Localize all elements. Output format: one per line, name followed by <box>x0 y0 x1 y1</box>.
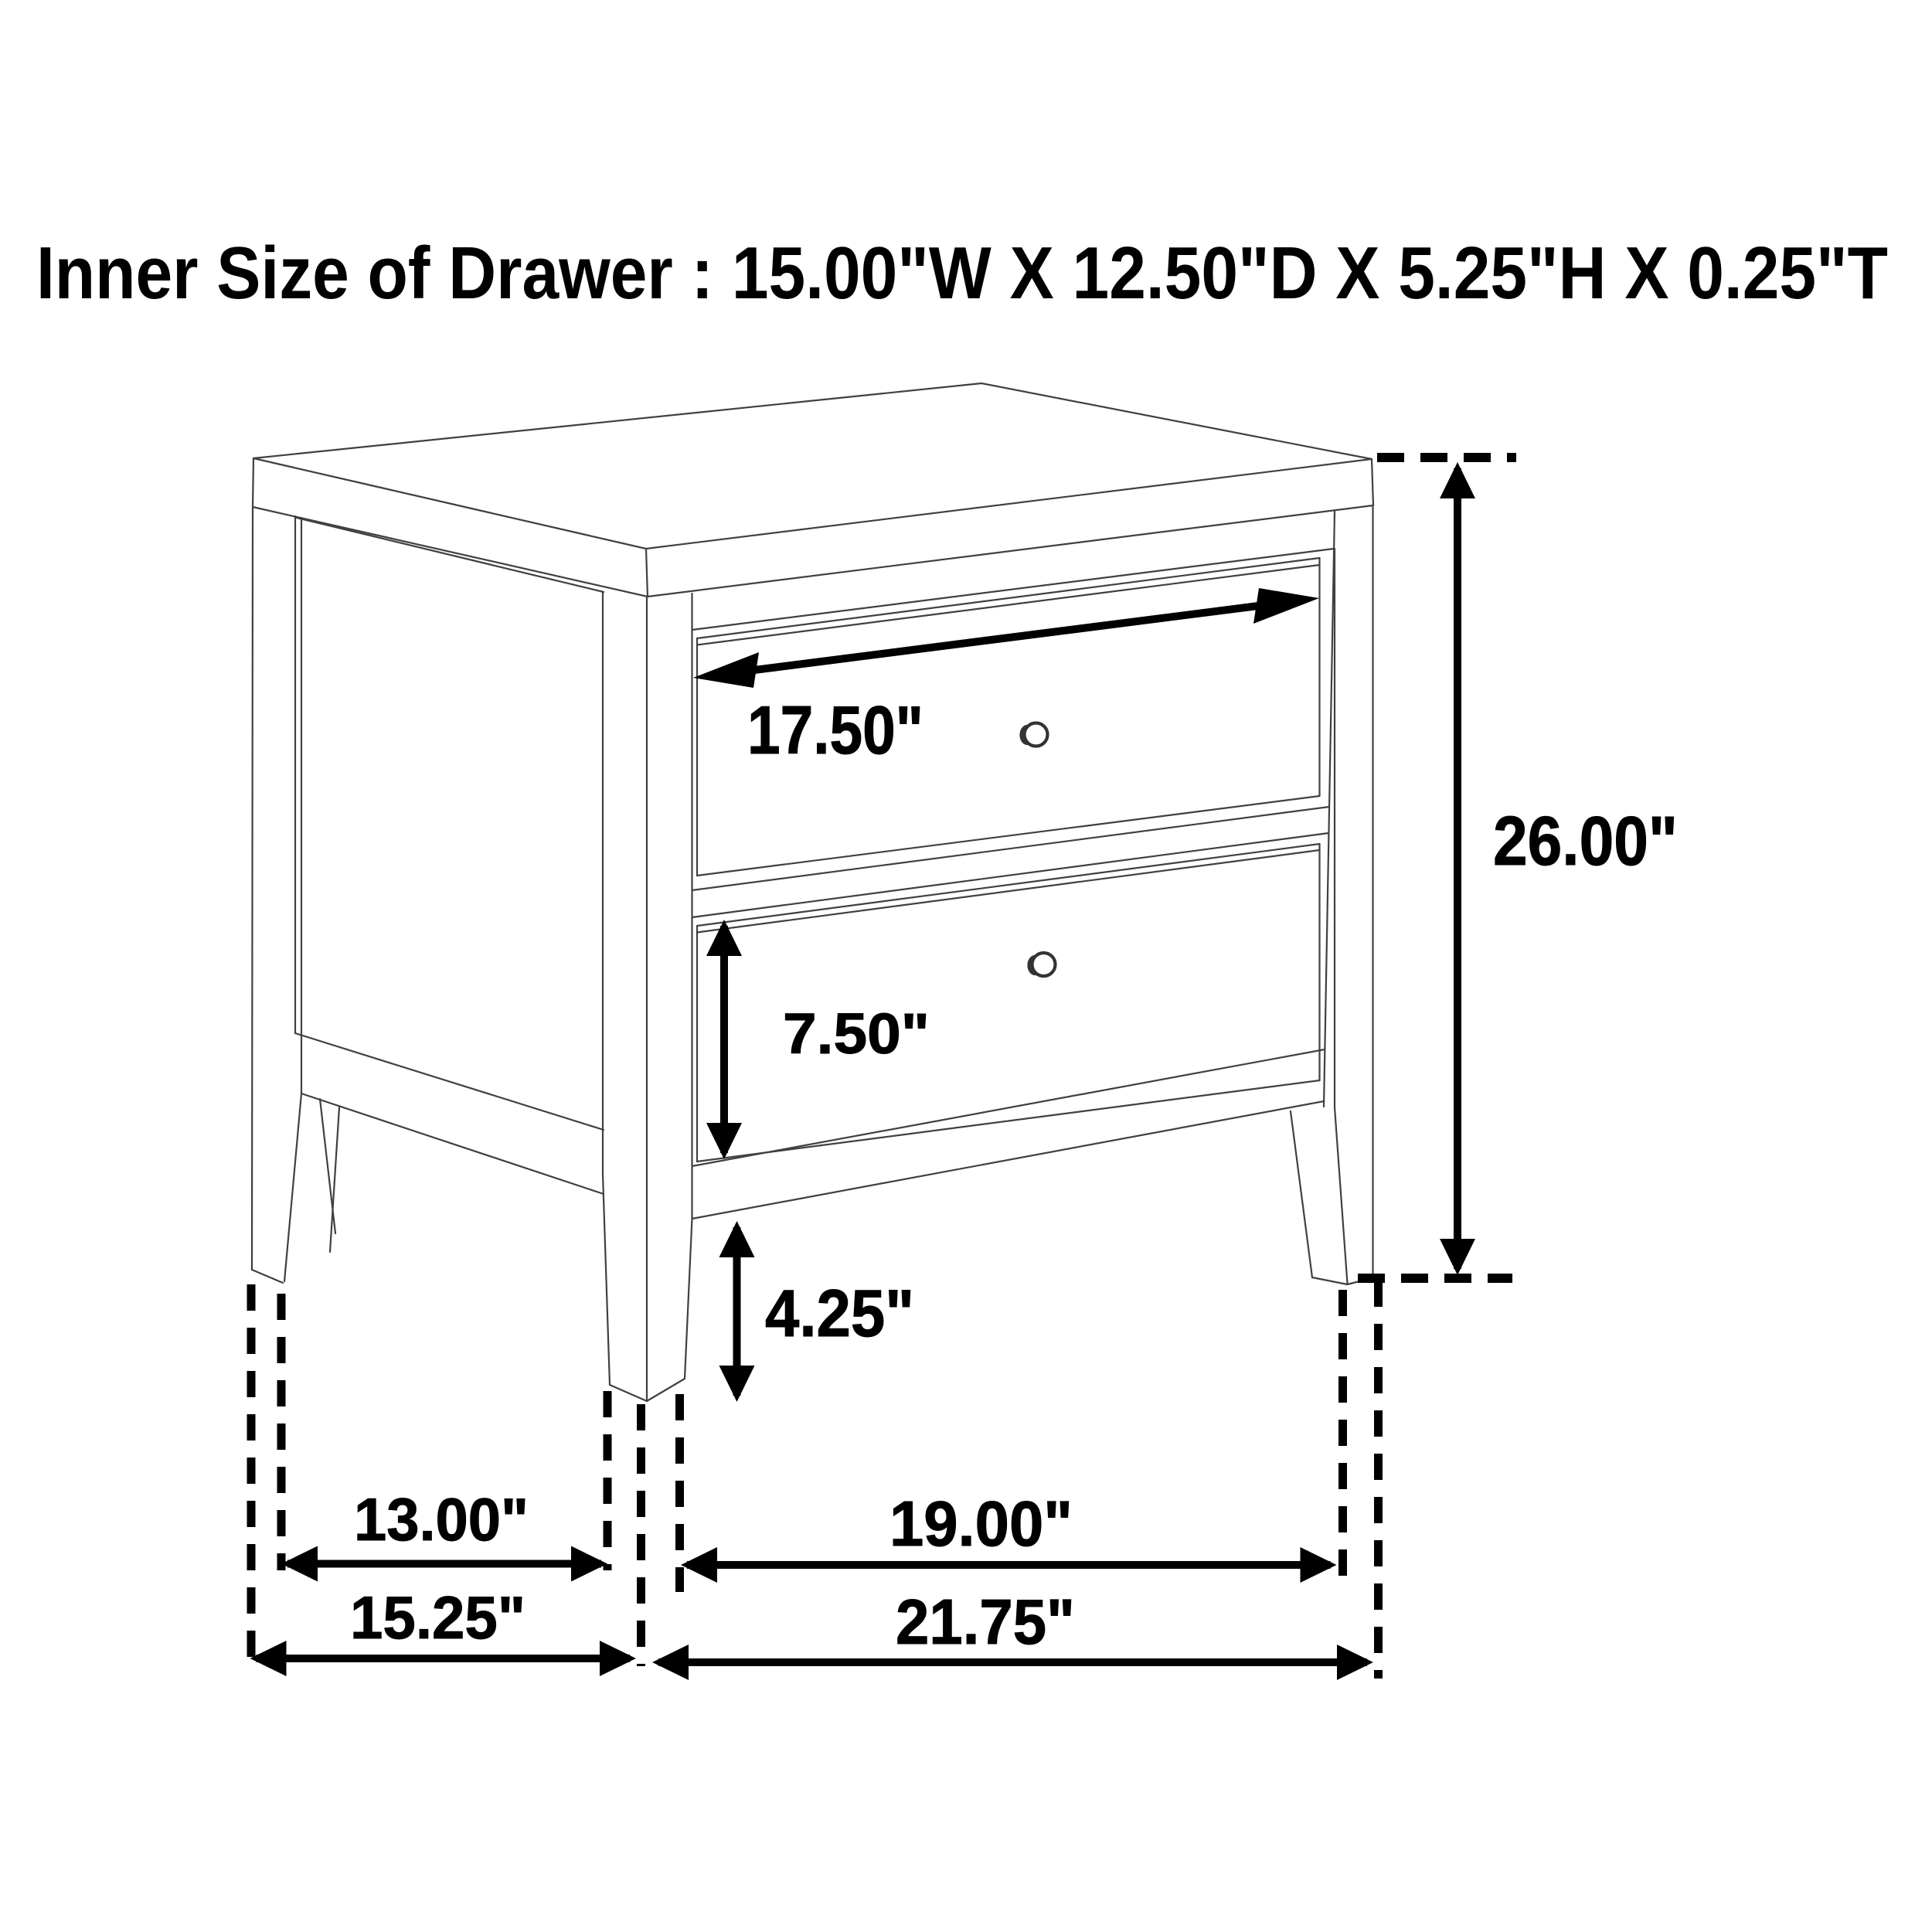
svg-text:7.50": 7.50" <box>783 1002 930 1066</box>
svg-text:19.00": 19.00" <box>889 1488 1073 1560</box>
svg-text:26.00": 26.00" <box>1493 803 1678 880</box>
svg-text:17.50": 17.50" <box>747 692 923 768</box>
svg-text:21.75": 21.75" <box>896 1586 1075 1658</box>
svg-text:15.25": 15.25" <box>350 1583 526 1651</box>
svg-text:13.00": 13.00" <box>354 1485 529 1553</box>
svg-text:4.25": 4.25" <box>765 1277 914 1351</box>
svg-text:Inner Size of Drawer : 15.00"W: Inner Size of Drawer : 15.00"W X 12.50"D… <box>36 232 1888 315</box>
